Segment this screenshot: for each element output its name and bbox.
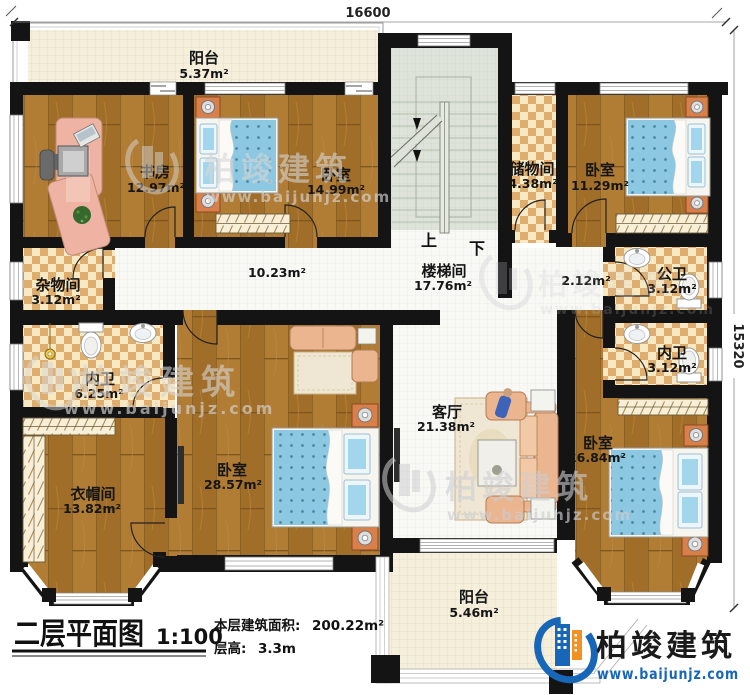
room-area: 21.38m² <box>417 419 475 434</box>
stairs-up-label: 上 <box>421 231 437 250</box>
svg-text:www.baijunjz.com: www.baijunjz.com <box>64 399 275 418</box>
toilet-icon <box>79 323 103 358</box>
floor-plan-drawing: 阳台 5.37m² 书房 12.97m² 卧室 14.99m² 储物间 4.38… <box>0 0 750 695</box>
room-area: 11.29m² <box>571 178 629 193</box>
tv-icon <box>178 446 184 504</box>
floor-area-label: 本层建筑面积: <box>214 617 300 634</box>
svg-text:www.baijunjz.com: www.baijunjz.com <box>540 302 715 318</box>
floor-plan-page: 阳台 5.37m² 书房 12.97m² 卧室 14.99m² 储物间 4.38… <box>0 0 750 695</box>
sliding-door <box>150 82 176 95</box>
dimension-right: 15320 <box>730 323 745 368</box>
room-label: 卧室 <box>585 161 615 179</box>
wardrobe-icon <box>216 214 290 233</box>
room-label: 阳台 <box>459 588 489 606</box>
dimension-top: 16600 <box>345 6 390 21</box>
sink-icon <box>624 249 650 268</box>
svg-text:柏竣建筑: 柏竣建筑 <box>204 150 352 188</box>
svg-text:柏竣建筑: 柏竣建筑 <box>538 267 674 301</box>
svg-text:柏竣建筑: 柏竣建筑 <box>78 363 242 403</box>
wardrobe-icon <box>616 214 708 233</box>
floor-height-label: 层高: <box>214 640 246 657</box>
plan-scale: 1:100 <box>156 625 223 649</box>
room-area: 3.12m² <box>647 360 696 375</box>
sink-icon <box>624 325 650 344</box>
sliding-door <box>345 82 373 95</box>
wardrobe-icon <box>618 399 708 415</box>
room-area: 5.46m² <box>449 605 498 620</box>
title-block: 二层平面图 1:100 本层建筑面积: 200.22m² 层高: 3.3m <box>12 617 384 657</box>
room-area: 28.57m² <box>204 477 262 492</box>
plan-title: 二层平面图 <box>14 617 144 652</box>
stairs-down-label: 下 <box>469 239 485 258</box>
room-area: 5.37m² <box>179 66 228 81</box>
room-area: 4.38m² <box>508 176 557 191</box>
room-area: 13.82m² <box>63 501 121 516</box>
rug-icon <box>294 352 356 394</box>
svg-text:www.baijunjz.com: www.baijunjz.com <box>206 188 391 206</box>
room-area: 10.23m² <box>248 265 306 280</box>
floor-height-value: 3.3m <box>258 641 296 657</box>
side-table-icon <box>531 390 555 411</box>
room-area: 16.84m² <box>568 450 626 465</box>
plant-icon <box>73 206 91 224</box>
brand-website: www.baijunjz.com <box>597 665 739 683</box>
floor-area-value: 200.22m² <box>312 618 384 634</box>
brand-logo: 柏竣建筑 www.baijunjz.com <box>526 609 739 691</box>
sink-icon <box>130 324 156 343</box>
chair-icon <box>40 150 54 180</box>
room-area: 17.76m² <box>414 278 472 293</box>
svg-text:柏竣建筑: 柏竣建筑 <box>445 468 593 506</box>
room-area: 3.12m² <box>31 292 80 307</box>
brand-name: 柏竣建筑 <box>596 629 736 664</box>
svg-text:www.baijunjz.com: www.baijunjz.com <box>447 506 632 524</box>
room-label: 阳台 <box>189 49 219 67</box>
